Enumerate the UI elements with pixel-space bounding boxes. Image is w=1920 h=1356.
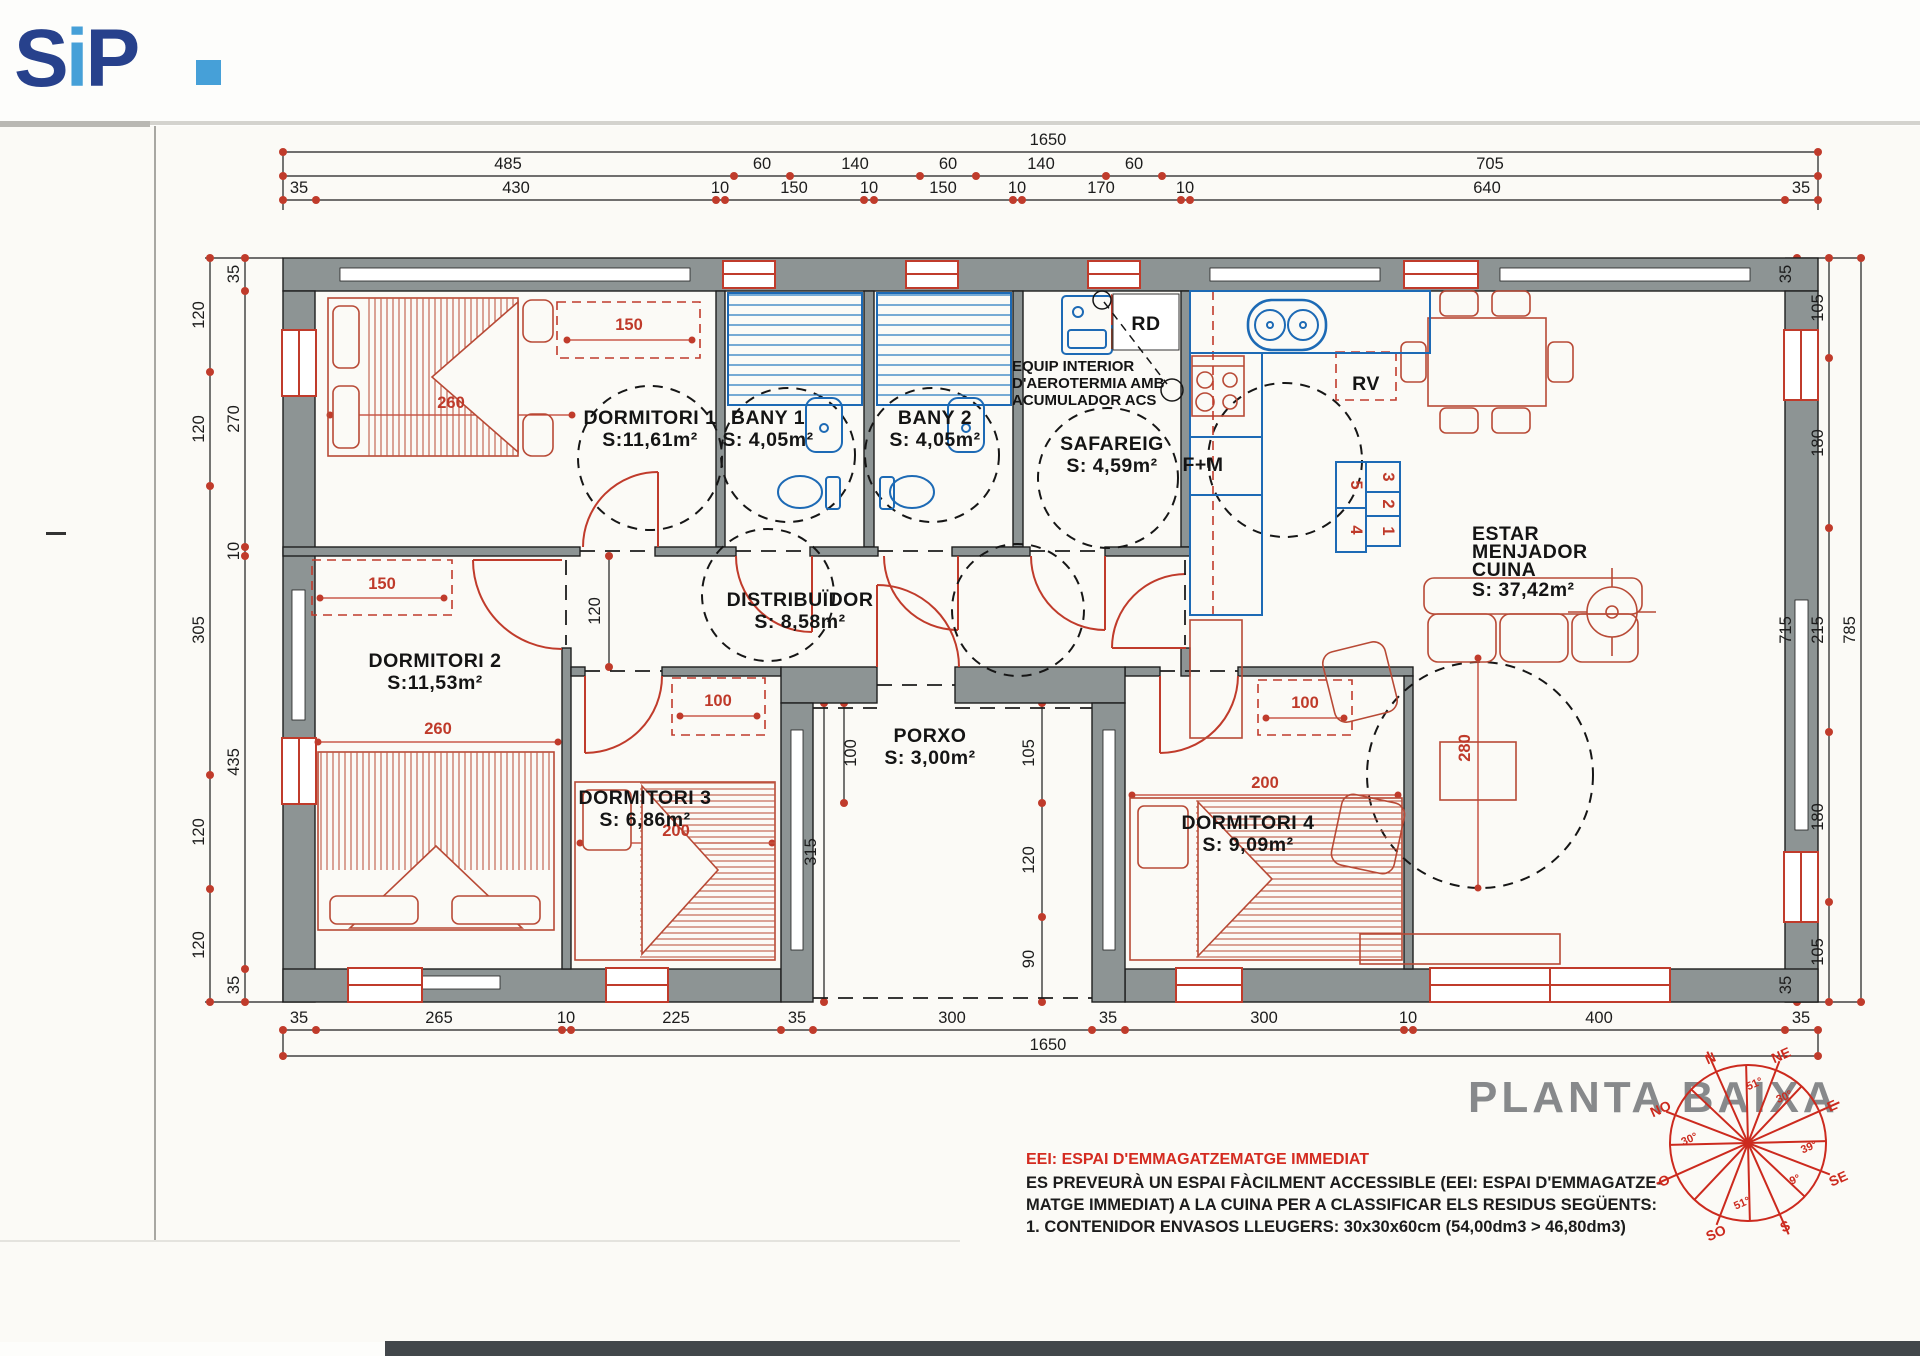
notes-line-3: 1. CONTENIDOR ENVASOS LLEUGERS: 30x30x60… — [1026, 1218, 1626, 1236]
dim-label: 10 — [225, 542, 243, 560]
dim-label: 715 — [1777, 616, 1795, 644]
svg-text:SiP: SiP — [14, 13, 138, 104]
room-name-distribuidor: DISTRIBUÏDOR — [727, 588, 874, 611]
room-name-dormitori2: DORMITORI 2 — [369, 650, 502, 672]
room-area-dormitori3: S: 6,86m² — [599, 809, 690, 831]
dim-label: 105 — [1809, 938, 1827, 966]
dim-label: 120 — [190, 818, 208, 846]
dim-label: 430 — [502, 179, 530, 197]
dim-label: 215 — [1809, 616, 1827, 644]
dim-label: 300 — [938, 1009, 966, 1027]
dim-label: 140 — [841, 155, 869, 173]
dim-label: 640 — [1473, 179, 1501, 197]
dim-label: 10 — [711, 179, 729, 197]
equip-label-3: ACUMULADOR ACS — [1012, 392, 1156, 409]
dim-label: 35 — [788, 1009, 806, 1027]
dim-label: 35 — [225, 976, 243, 994]
container-number: 2 — [1379, 499, 1397, 508]
dim-label: 150 — [780, 179, 808, 197]
logo-letter-i: i — [66, 13, 86, 104]
dim-label: 120 — [586, 597, 604, 625]
dim-label-red: 150 — [368, 575, 396, 593]
dim-label: 140 — [1027, 155, 1055, 173]
dim-label: 120 — [190, 931, 208, 959]
floor-plan-drawing: SiP — [0, 0, 1920, 1356]
room-name-bany1: BANY 1 — [731, 407, 805, 429]
equip-label-2: D'AEROTERMIA AMB — [1012, 375, 1165, 392]
dim-label: 180 — [1809, 429, 1827, 457]
dim-label: 105 — [1809, 294, 1827, 322]
label-rd: RD — [1131, 313, 1160, 335]
room-area-dormitori4: S: 9,09m² — [1202, 834, 1293, 856]
dim-label: 100 — [842, 739, 860, 767]
label-fm: F+M — [1182, 454, 1223, 476]
room-area-dormitori1: S:11,61m² — [602, 429, 698, 451]
room-area-bany1: S: 4,05m² — [722, 429, 813, 451]
dim-label: 60 — [1125, 155, 1143, 173]
room-area-safareig: S: 4,59m² — [1066, 455, 1157, 477]
dim-label: 35 — [1792, 1009, 1810, 1027]
dim-label: 150 — [929, 179, 957, 197]
dim-label: 35 — [1777, 976, 1795, 994]
dim-label: 120 — [190, 415, 208, 443]
dim-label: 35 — [1777, 265, 1795, 283]
equip-label-1: EQUIP INTERIOR — [1012, 358, 1134, 375]
dim-label: 120 — [1020, 846, 1038, 874]
room-area-dormitori2: S:11,53m² — [387, 672, 483, 694]
dim-label: 105 — [1020, 739, 1038, 767]
dim-label: 785 — [1841, 616, 1859, 644]
room-name-dormitori1: DORMITORI 1 — [584, 407, 717, 429]
dim-label: 300 — [1250, 1009, 1278, 1027]
room-area-porxo: S: 3,00m² — [884, 747, 975, 769]
room-area-estar: S: 37,42m² — [1472, 579, 1575, 601]
dim-label: 180 — [1809, 803, 1827, 831]
dim-label: 35 — [290, 179, 308, 197]
dim-label-red: 100 — [704, 692, 732, 710]
dim-label: 305 — [190, 616, 208, 644]
container-number: 1 — [1379, 526, 1397, 535]
dim-label: 315 — [802, 838, 820, 866]
dim-label-red: 150 — [615, 316, 643, 334]
dim-label: 705 — [1476, 155, 1504, 173]
room-name-dormitori3: DORMITORI 3 — [579, 787, 712, 809]
room-name-estar-3: CUINA — [1472, 559, 1536, 581]
room-area-bany2: S: 4,05m² — [889, 429, 980, 451]
notes-line-2: MATGE IMMEDIAT) A LA CUINA PER A CLASSIF… — [1026, 1195, 1657, 1214]
room-name-dormitori4: DORMITORI 4 — [1182, 812, 1315, 834]
scanned-floor-plan-page: SiP — [0, 0, 1920, 1356]
dim-label: 10 — [1176, 179, 1194, 197]
dim-label-red: 260 — [424, 720, 452, 738]
label-rv: RV — [1352, 373, 1380, 395]
dim-label: 10 — [860, 179, 878, 197]
dim-label: 10 — [1008, 179, 1026, 197]
logo-letter-s: S — [14, 13, 66, 104]
room-name-bany2: BANY 2 — [898, 407, 972, 429]
dim-label: 60 — [939, 155, 957, 173]
dim-label-red: 100 — [1291, 694, 1319, 712]
dim-label: 60 — [753, 155, 771, 173]
dim-label: 170 — [1087, 179, 1115, 197]
dim-label: 1650 — [1030, 131, 1067, 149]
dim-label: 35 — [290, 1009, 308, 1027]
container-number: 4 — [1347, 525, 1365, 535]
logo-period — [196, 60, 221, 85]
notes-title: EEI: ESPAI D'EMMAGATZEMATGE IMMEDIAT — [1026, 1151, 1369, 1168]
dim-label-red: 280 — [1456, 734, 1474, 762]
dim-label: 270 — [225, 405, 243, 433]
dim-label: 35 — [1099, 1009, 1117, 1027]
container-number: 3 — [1379, 472, 1397, 481]
dim-label: 90 — [1020, 950, 1038, 968]
logo-letter-p: P — [86, 13, 138, 104]
dim-label: 120 — [190, 301, 208, 329]
dim-label: 435 — [225, 748, 243, 776]
dim-label: 1650 — [1030, 1036, 1067, 1054]
room-name-porxo: PORXO — [894, 725, 967, 747]
dim-label: 35 — [225, 265, 243, 283]
dim-label: 400 — [1585, 1009, 1613, 1027]
room-name-safareig: SAFAREIG — [1060, 433, 1164, 455]
dim-label-red: 260 — [437, 394, 465, 412]
dim-label: 225 — [662, 1009, 690, 1027]
dim-label: 10 — [557, 1009, 575, 1027]
dim-label: 10 — [1399, 1009, 1417, 1027]
dim-label: 265 — [425, 1009, 453, 1027]
dim-label: 485 — [494, 155, 522, 173]
dim-label: 35 — [1792, 179, 1810, 197]
container-number: 5 — [1347, 480, 1365, 489]
room-area-distribuidor: S: 8,58m² — [754, 611, 845, 633]
notes-line-1: ES PREVEURÀ UN ESPAI FÀCILMENT ACCESSIBL… — [1026, 1173, 1662, 1192]
dim-label-red: 200 — [1251, 774, 1279, 792]
